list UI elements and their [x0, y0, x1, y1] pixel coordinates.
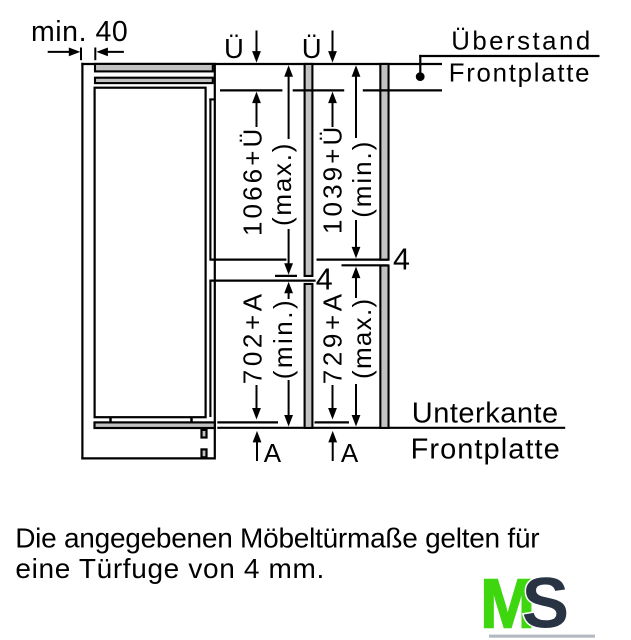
svg-text:Ü: Ü — [302, 33, 322, 64]
svg-text:Frontplatte: Frontplatte — [411, 433, 561, 465]
svg-text:1039+Ü: 1039+Ü — [318, 124, 348, 234]
svg-text:(max.): (max.) — [347, 298, 377, 379]
svg-text:1066+Ü: 1066+Ü — [238, 126, 268, 236]
svg-text:4: 4 — [393, 243, 410, 277]
svg-text:eine Türfuge von 4 mm.: eine Türfuge von 4 mm. — [15, 553, 325, 584]
svg-text:Überstand: Überstand — [451, 28, 593, 56]
svg-text:702+A: 702+A — [238, 290, 268, 384]
svg-text:A: A — [264, 438, 282, 468]
svg-text:(max.): (max.) — [267, 142, 297, 226]
svg-text:S: S — [522, 565, 569, 640]
svg-text:Die angegebenen Möbeltürmaße g: Die angegebenen Möbeltürmaße gelten für — [15, 523, 539, 554]
svg-text:Ü: Ü — [224, 33, 244, 64]
svg-text:A: A — [341, 438, 359, 468]
svg-text:Unterkante: Unterkante — [412, 398, 559, 430]
svg-text:Frontplatte: Frontplatte — [449, 59, 592, 87]
svg-text:4: 4 — [316, 262, 333, 296]
svg-text:(min.): (min.) — [268, 298, 298, 379]
svg-text:min. 40: min. 40 — [31, 16, 128, 48]
svg-text:(min.): (min.) — [347, 140, 377, 218]
svg-text:729+A: 729+A — [318, 290, 348, 384]
